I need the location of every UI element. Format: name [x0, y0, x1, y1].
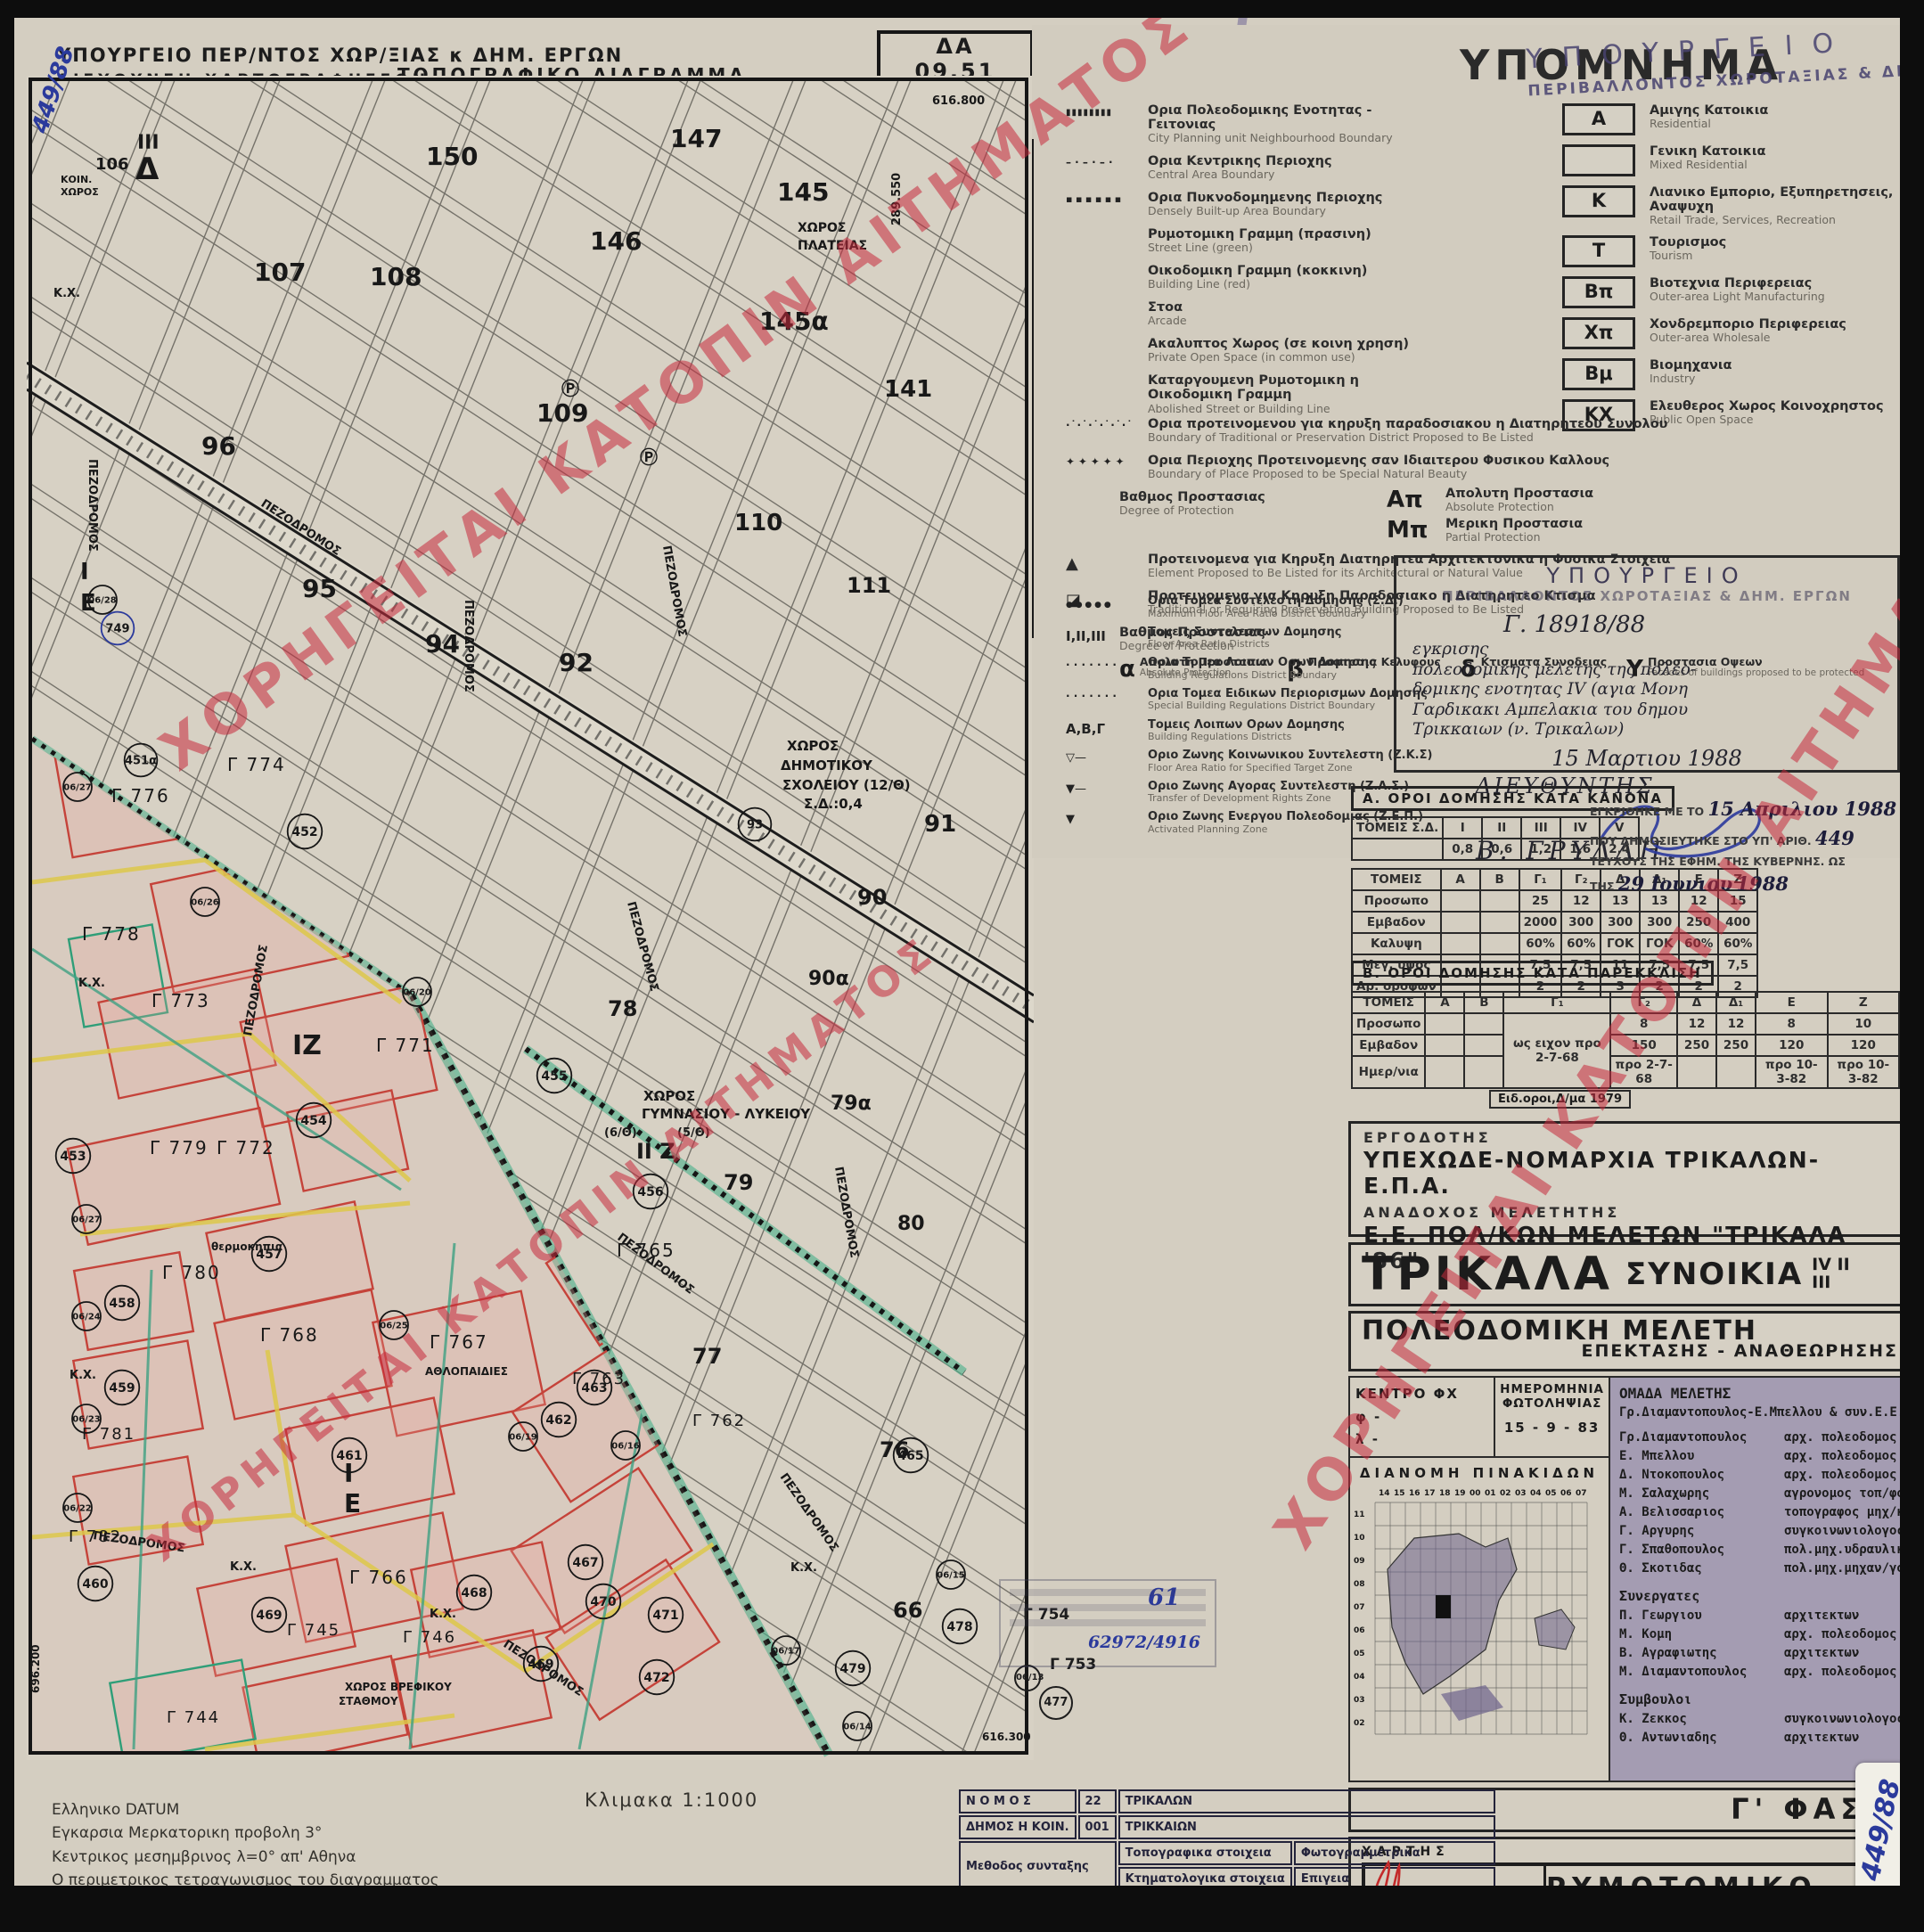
plot-number-circle: 93 [747, 819, 763, 832]
block-label: ΧΩΡΟΣ [61, 186, 99, 198]
team-title: ΟΜΑΔΑ ΜΕΛΕΤΗΣ [1619, 1385, 1900, 1402]
block-label: 141 [884, 376, 932, 403]
datum-line: Εγκαρσια Μερκατορικη προβολη 3° [52, 1821, 439, 1845]
block-label: 95 [302, 574, 337, 603]
team-member-row: Γ. Αργυρης συγκοινωνιολογος [1619, 1524, 1900, 1538]
legend-symbol-icon [1066, 373, 1148, 414]
table-cell: Τοπογραφικα στοιχεια [1118, 1841, 1292, 1865]
stamp-body-line: Τρικκαιων (ν. Τρικαλων) [1412, 720, 1897, 741]
legend-item-greek: Ορια Πολεοδομικης Ενοτητας - Γειτονιας [1148, 103, 1440, 132]
legend-item-text: Ορια Τομεα Συντελεστη Δομησης (Σ.Δ.) Max… [1148, 595, 1404, 619]
block-label: Κ.Χ. [70, 1369, 96, 1382]
member-role: πολ.μηχ.υδραυλικος [1784, 1543, 1900, 1557]
block-label: (5/Θ) [677, 1126, 710, 1140]
block-label: 111 [847, 573, 891, 598]
advisor-name: Θ. Αντωνιαδης [1619, 1731, 1784, 1745]
team-member-row: Α. Βελισσαριος τοπογραφος μηχ/κος [1619, 1505, 1900, 1519]
table-cell [1425, 1035, 1464, 1056]
stamp-body-line: πολεοδομικης μελετης της πολεο- [1412, 660, 1897, 681]
protection-code-greek: Απολυτη Προστασια [1445, 487, 1593, 501]
plot-number-circle: 459 [109, 1381, 135, 1396]
land-use-item: Βμ Βιομηχανια Industry [1562, 358, 1896, 390]
land-use-item: Χπ Χονδρεμποριο Περιφερειας Outer-area W… [1562, 317, 1896, 349]
legend-item: Οριο Ζωνης Κοινωνικου Συντελεστη (Ζ.Κ.Σ)… [1066, 749, 1449, 774]
collaborator-name: Π. Γεωργιου [1619, 1609, 1784, 1623]
svg-text:06: 06 [1354, 1626, 1365, 1635]
legend-item-text: Ορια Πυκνοδομημενης Περιοχης Densely Bui… [1148, 191, 1382, 217]
table-cell: 1,2 [1521, 839, 1560, 860]
land-use-text: Χονδρεμποριο Περιφερειας Outer-area Whol… [1650, 317, 1846, 344]
block-label: Γ 746 [403, 1628, 456, 1647]
plot-number-circle: 06/27 [72, 1216, 101, 1225]
survey-info-table: Ν Ο Μ Ο Σ22ΤΡΙΚΑΛΩΝΔΗΜΟΣ Η ΚΟΙΝ.001ΤΡΙΚΚ… [957, 1788, 1497, 1886]
land-use-text: Γενικη Κατοικια Mixed Residential [1650, 144, 1766, 171]
plot-number-circle: 456 [637, 1185, 663, 1199]
sheet-index-map: ΔΙΑΝΟΜΗ ΠΙΝΑΚΙΔΩΝ 1415161718190001020304… [1350, 1458, 1609, 1759]
block-label: Δ [135, 151, 160, 187]
gazette-printed-3: ΤΕΥΧΟΥΣ ΤΗΣ ΕΦΗΜ. ΤΗΣ ΚΥΒΕΡΝΗΣ. ΩΣ [1590, 855, 1846, 868]
legend-item-english: Densely Built-up Area Boundary [1148, 205, 1382, 217]
plot-number-circle: 463 [581, 1381, 607, 1396]
legend-item-greek: Ορια Τομεα Λοιπων Ορων Δομησης [1148, 657, 1376, 670]
derogation-terms-table: ΤΟΜΕΙΣΑΒΓ₁Γ₂ΔΔ₁ΕΖΠροσωποως ειχον προ 2-7… [1351, 991, 1900, 1089]
gazette-hand-date: 15 Απριλιου 1988 [1708, 798, 1897, 820]
collaborator-role: αρχ. πολεοδομος [1784, 1627, 1896, 1641]
svg-text:14: 14 [1379, 1489, 1390, 1498]
table-cell [1480, 912, 1519, 933]
svg-text:07: 07 [1354, 1603, 1365, 1612]
block-label: 289.550 [890, 173, 904, 225]
legend-item: Ορια προτεινομενου για κηρυξη παραδοσιακ… [1066, 417, 1868, 444]
street-label: ΠΕΖΟΔΡΟΜΟΣ [86, 459, 99, 552]
table-cell: Εμβαδον [1352, 1035, 1425, 1056]
table-cell: προ 10-3-82 [1828, 1056, 1900, 1088]
plot-number-circle: 470 [590, 1595, 616, 1609]
legend-symbol-icon [1066, 227, 1148, 254]
block-label: Γ 772 [217, 1137, 275, 1158]
table-cell: Ν Ο Μ Ο Σ [959, 1789, 1077, 1813]
protection-code-english: Absolute Protection [1445, 501, 1593, 513]
plot-number-circle: 465 [897, 1449, 923, 1463]
land-use-text: Λιανικο Εμποριο, Εξυπηρετησεις, Αναψυχη … [1650, 185, 1896, 226]
block-label: 147 [670, 124, 722, 153]
table-cell: ΤΡΙΚΚΑΙΩΝ [1118, 1815, 1495, 1839]
block-label: ΧΩΡΟΣ ΒΡΕΦΙΚΟΥ [345, 1681, 452, 1693]
employer-box: ΕΡΓΟΔΟΤΗΣ ΥΠΕΧΩΔΕ-ΝΟΜΑΡΧΙΑ ΤΡΙΚΑΛΩΝ-Ε.Π.… [1348, 1121, 1900, 1237]
table-cell [1480, 933, 1519, 954]
table-cell: Καλυψη [1352, 933, 1441, 954]
legend-divider [1032, 139, 1034, 638]
collaborator-row: Μ. Κομη αρχ. πολεοδομος [1619, 1627, 1900, 1641]
consultant-label: ΑΝΑΔΟΧΟΣ ΜΕΛΕΤΗΤΗΣ [1363, 1204, 1896, 1221]
table-cell: 400 [1718, 912, 1757, 933]
svg-text:01: 01 [1485, 1489, 1496, 1498]
legend-item: Στοα Arcade [1066, 300, 1440, 327]
legend-item-text: Τομεις Συντελεστων Δομησης Floor Area Ra… [1148, 626, 1341, 651]
svg-text:04: 04 [1354, 1673, 1365, 1682]
legend-item: Ορια Πολεοδομικης Ενοτητας - Γειτονιας C… [1066, 103, 1440, 144]
city-title: ΤΡΙΚΑΛΑ [1362, 1248, 1613, 1301]
legend-item: Ορια Τομεα Ειδικων Περιορισμων Δομησης S… [1066, 688, 1449, 712]
protection-degree-block: Βαθμος Προστασιας Degree of Protection Α… [1119, 490, 1868, 544]
block-label: 696.200 [29, 1644, 42, 1693]
legend-symbol-icon [1066, 337, 1148, 364]
legend-item-greek: Στοα [1148, 300, 1187, 315]
block-label: Ⓟ [640, 446, 658, 468]
block-label: 107 [254, 258, 306, 287]
legend-item-text: Οικοδομικη Γραμμη (κοκκινη) Building Lin… [1148, 264, 1367, 291]
legend-item-english: Street Line (green) [1148, 241, 1371, 254]
block-label: 109 [536, 398, 588, 428]
svg-text:08: 08 [1354, 1580, 1365, 1589]
table-cell [1352, 839, 1443, 860]
svg-text:19: 19 [1454, 1489, 1466, 1498]
land-use-english: Tourism [1650, 250, 1726, 262]
plot-number-circle: 06/23 [72, 1415, 101, 1425]
block-label: Σ.Δ.:0,4 [804, 796, 863, 812]
legend-symbol-icon [1066, 688, 1148, 712]
plot-number-circle: 749 [105, 623, 129, 636]
member-name: Α. Βελισσαριος [1619, 1505, 1784, 1519]
block-label: Γ 766 [349, 1567, 408, 1588]
table-cell: Β [1464, 992, 1503, 1013]
plot-number-circle: 460 [82, 1577, 108, 1592]
land-use-greek: Γενικη Κατοικια [1650, 144, 1766, 159]
plot-number-circle: 471 [652, 1609, 678, 1623]
svg-text:06: 06 [1560, 1489, 1572, 1498]
legend-symbol-icon [1066, 595, 1148, 619]
plot-number-circle: 06/14 [843, 1723, 872, 1732]
legend-item-english: Boundary of Place Proposed to be Special… [1148, 468, 1609, 480]
legend-item: Οικοδομικη Γραμμη (κοκκινη) Building Lin… [1066, 264, 1440, 291]
table-cell: 60% [1519, 933, 1562, 954]
legend-item-text: Ορια προτεινομενου για κηρυξη παραδοσιακ… [1148, 417, 1667, 444]
table-cell: ΓΟΚ [1640, 933, 1679, 954]
red-check-scribble-icon [1360, 1855, 1413, 1886]
info-grid: ΚΕΝΤΡΟ ΦΧ φ - λ - ΗΜΕΡΟΜΗΝΙΑ ΦΩΤΟΛΗΨΙΑΣ … [1348, 1376, 1900, 1782]
legend-item-greek: Τομεις Λοιπων Ορων Δομησης [1148, 719, 1345, 733]
block-label: 145 [777, 177, 829, 207]
block-label: 110 [734, 510, 782, 536]
table-cell [1480, 890, 1519, 912]
block-label: Κ.Χ. [430, 1608, 456, 1621]
land-use-code-box: Βπ [1562, 276, 1635, 308]
svg-text:02: 02 [1354, 1719, 1365, 1728]
svg-text:07: 07 [1576, 1489, 1587, 1498]
advisor-row: Θ. Αντωνιαδης αρχιτεκτων [1619, 1731, 1900, 1745]
legend-item-greek: Καταργουμενη Ρυμοτομικη η Οικοδομικη Γρα… [1148, 373, 1440, 402]
gazette-hand-number: 449 [1815, 827, 1854, 849]
gazette-hand-date-2: 29 Ιουνιου [1618, 872, 1732, 895]
table-cell: ΔΗΜΟΣ Η ΚΟΙΝ. [959, 1815, 1077, 1839]
team-firm: Γρ.Διαμαντοπουλος-Ε.Μπελλου & συν.Ε.Ε. [1619, 1405, 1900, 1420]
collaborator-row: Π. Γεωργιου αρχιτεκτων [1619, 1609, 1900, 1623]
table-cell: προ 2-7-68 [1610, 1056, 1677, 1088]
stamp-body-line: δομικης ενοτητας ΙV (αγια Μονη [1412, 680, 1897, 700]
svg-text:03: 03 [1354, 1696, 1365, 1705]
land-use-greek: Βιοτεχνια Περιφερειας [1650, 276, 1825, 291]
block-label: 94 [425, 629, 460, 659]
employer-label: ΕΡΓΟΔΟΤΗΣ [1363, 1129, 1896, 1146]
district-numerals-top: ΙV ΙΙ [1812, 1257, 1850, 1274]
plot-number-circle: 06/22 [63, 1504, 92, 1514]
legend-item-greek: Ορια προτεινομενου για κηρυξη παραδοσιακ… [1148, 417, 1667, 431]
sticker-number: 449/88 [1855, 1776, 1900, 1883]
info-left-column: ΚΕΝΤΡΟ ΦΧ φ - λ - ΗΜΕΡΟΜΗΝΙΑ ΦΩΤΟΛΗΨΙΑΣ … [1350, 1378, 1610, 1781]
collaborator-name: Μ. Διαμαντοπουλος [1619, 1665, 1784, 1679]
table-cell [1425, 1013, 1464, 1035]
table-cell: 60% [1718, 933, 1757, 954]
plot-number-circle: 451α [125, 755, 157, 768]
title-block-column: ΕΡΓΟΔΟΤΗΣ ΥΠΕΧΩΔΕ-ΝΟΜΑΡΧΙΑ ΤΡΙΚΑΛΩΝ-Ε.Π.… [1348, 1121, 1900, 1886]
legend-item-english: Boundary of Traditional or Preservation … [1148, 431, 1667, 444]
stamp-agency-line1: ΥΠΟΥΡΓΕΙΟ [1396, 563, 1897, 588]
block-label: 78 [608, 996, 637, 1021]
member-name: Δ. Ντοκοπουλος [1619, 1468, 1784, 1482]
chart-name: ΡΥΜΟΤΟΜΙΚΟ ΣΧΕΔΙΟ [1546, 1866, 1895, 1886]
table-cell: ΙΙ [1482, 817, 1521, 839]
plot-number-circle: 479 [839, 1662, 865, 1676]
legend-item-english: Building Line (red) [1148, 278, 1367, 291]
block-label: 79α [831, 1093, 872, 1115]
plot-number-circle: 06/16 [611, 1442, 640, 1452]
plot-number-circle: 472 [643, 1671, 669, 1685]
land-use-greek: Λιανικο Εμποριο, Εξυπηρετησεις, Αναψυχη [1650, 185, 1896, 214]
file-number-sticker: 449/88 [1855, 1763, 1900, 1886]
block-label: 90 [857, 885, 887, 910]
advisor-role: συγκοινωνιολογος [1784, 1712, 1900, 1726]
block-label: Ι [80, 559, 89, 585]
member-role: τοπογραφος μηχ/κος [1784, 1505, 1900, 1519]
plot-number-circle: 06/28 [88, 596, 117, 606]
block-label: 616.300 [982, 1731, 1031, 1743]
legend-symbol-icon [1066, 553, 1148, 579]
legend-item-english: Building Regulations Districts [1148, 732, 1345, 742]
protection-code-letter: Μπ [1387, 517, 1445, 544]
legend-item-greek: Ορια Πυκνοδομημενης Περιοχης [1148, 191, 1382, 205]
legend-symbol-icon: Ι,ΙΙ,ΙΙΙ [1066, 626, 1148, 651]
member-name: Θ. Σκοτιδας [1619, 1561, 1784, 1576]
table-cell: 60% [1679, 933, 1718, 954]
legend-item-english: Private Open Space (in common use) [1148, 351, 1409, 364]
block-label: ΓΥΜΝΑΣΙΟΥ - ΛΥΚΕΙΟΥ [642, 1106, 811, 1122]
legend-item-text: Στοα Arcade [1148, 300, 1187, 327]
legend-item-greek: Ορια Τομεα Ειδικων Περιορισμων Δομησης [1148, 688, 1428, 701]
legend-item: Ορια Τομεα Συντελεστη Δομησης (Σ.Δ.) Max… [1066, 595, 1449, 619]
block-label: 80 [897, 1213, 925, 1235]
block-label: Γ 745 [287, 1621, 340, 1640]
member-role: αρχ. πολεοδομος [1784, 1430, 1896, 1445]
legend-item: Καταργουμενη Ρυμοτομικη η Οικοδομικη Γρα… [1066, 373, 1440, 414]
table-cell: προ 10-3-82 [1756, 1056, 1827, 1088]
table-cell: 12 [1716, 1013, 1756, 1035]
protection-code-text: Μερικη Προστασια Partial Protection [1445, 517, 1583, 544]
legend-item-english: Building Regulations District Boundary [1148, 670, 1376, 681]
land-use-text: Τουρισμος Tourism [1650, 235, 1726, 262]
table-cell [1441, 933, 1480, 954]
land-use-english: Residential [1650, 118, 1768, 130]
legend-item-greek: Ακαλυπτος Χωρος (σε κοινη χρηση) [1148, 337, 1409, 351]
block-label: Γ 773 [151, 990, 210, 1011]
advisor-role: αρχιτεκτων [1784, 1731, 1859, 1745]
stamp-protocol-number: Γ. 18918/88 [1503, 611, 1897, 638]
legend-item-greek: Ρυμοτομικη Γραμμη (πρασινη) [1148, 227, 1371, 241]
table-cell: 250 [1677, 1035, 1716, 1056]
table-cell: 300 [1640, 912, 1679, 933]
table-cell: ΤΡΙΚΑΛΩΝ [1118, 1789, 1495, 1813]
svg-text:02: 02 [1500, 1489, 1511, 1498]
table-cell: 120 [1828, 1035, 1900, 1056]
legend-item-english: City Planning unit Neighbourhood Boundar… [1148, 132, 1440, 144]
table-cell: Ζ [1828, 992, 1900, 1013]
legend-item-greek: Τομεις Συντελεστων Δομησης [1148, 626, 1341, 640]
phi-value: φ - [1355, 1406, 1488, 1429]
collaborator-row: Β. Αγραφιωτης αρχιτεκτων [1619, 1646, 1900, 1660]
plot-number-circle: 455 [541, 1069, 567, 1084]
table-cell: 0,8 [1443, 839, 1482, 860]
land-use-english: Mixed Residential [1650, 159, 1766, 171]
legend-item-text: Καταργουμενη Ρυμοτομικη η Οικοδομικη Γρα… [1148, 373, 1440, 414]
svg-text:05: 05 [1545, 1489, 1557, 1498]
protection-code-english: Partial Protection [1445, 531, 1583, 544]
table-cell: Β [1480, 869, 1519, 890]
table-cell: Γ₂ [1610, 992, 1677, 1013]
plot-number-circle: 478 [946, 1620, 972, 1634]
table-cell: 300 [1601, 912, 1640, 933]
employer-name: ΥΠΕΧΩΔΕ-ΝΟΜΑΡΧΙΑ ΤΡΙΚΑΛΩΝ-Ε.Π.Α. [1363, 1147, 1896, 1199]
table-cell: 8 [1756, 1013, 1827, 1035]
center-label: ΚΕΝΤΡΟ ΦΧ [1355, 1383, 1488, 1406]
land-use-code-box: Κ [1562, 185, 1635, 217]
map-margin-label: 477 [1039, 1686, 1073, 1720]
land-use-code-list: Α Αμιγης Κατοικια Residential Γενικη Κατ… [1562, 103, 1896, 440]
table-cell [1464, 1013, 1503, 1035]
collaborators-title: Συνεργατες [1619, 1588, 1900, 1604]
land-use-code-box: Βμ [1562, 358, 1635, 390]
block-label: Κ.Χ. [230, 1560, 257, 1574]
gazette-printed-2: ΠΟΥ ΔΗΜΟΣΙΕΥΤΗΚΕ ΣΤΟ ΥΠ' ΑΡΙΘ. [1590, 834, 1812, 847]
collaborator-role: αρχ. πολεοδομος [1784, 1665, 1896, 1679]
project-title-box: ΤΡΙΚΑΛΑ ΣΥΝΟΙΚΙΑ ΙV ΙΙ ΙΙΙ [1348, 1242, 1900, 1306]
table-cell: 8 [1610, 1013, 1677, 1035]
legend-symbol-icon [1066, 264, 1148, 291]
gazette-printed-4: ΤΗΣ [1590, 880, 1615, 893]
table-cell: Ε [1756, 992, 1827, 1013]
land-use-text: Βιομηχανια Industry [1650, 358, 1732, 385]
block-label: Γ 781 [82, 1425, 135, 1444]
protection-code: Μπ Μερικη Προστασια Partial Protection [1387, 517, 1868, 544]
table-cell: Προσωπο [1352, 1013, 1425, 1035]
plot-number-circle: 06/19 [509, 1433, 537, 1443]
svg-text:10: 10 [1354, 1534, 1365, 1543]
plot-number-circle: 452 [291, 825, 317, 839]
block-label: Γ 778 [82, 923, 141, 945]
datum-line: Ο περιμετρικος τετραγωνισμος του διαγραμ… [52, 1869, 439, 1886]
map-scale-note: Κλιμακα 1:1000 [585, 1789, 758, 1811]
land-use-greek: Τουρισμος [1650, 235, 1726, 250]
legend-symbol-icon [1066, 154, 1148, 181]
plot-number-circle: 458 [109, 1297, 135, 1311]
photo-date-cell: ΗΜΕΡΟΜΗΝΙΑ ΦΩΤΟΛΗΨΙΑΣ 15 - 9 - 83 [1495, 1378, 1609, 1456]
datum-line: Ελληνικο DATUM [52, 1798, 439, 1821]
stamp-handwritten-body: εγκρισηςπολεοδομικης μελετης της πολεο-δ… [1412, 640, 1897, 741]
protection-code-greek: Μερικη Προστασια [1445, 517, 1583, 531]
table-cell: 250 [1679, 912, 1718, 933]
svg-text:18: 18 [1439, 1489, 1451, 1498]
plot-number-circle: 06/26 [191, 898, 219, 908]
table-cell: ΙΙΙ [1521, 817, 1560, 839]
block-label: ΙΙ Ζ [636, 1139, 675, 1164]
topographic-map: 106ΙΙΙΔ10710896150146147145145α141109110… [27, 76, 1034, 1760]
block-label: 145α [759, 307, 829, 336]
legend-item-greek: Οριο Ζωνης Κοινωνικου Συντελεστη (Ζ.Κ.Σ) [1148, 749, 1432, 763]
table-cell: Μεθοδος συνταξης [959, 1841, 1117, 1886]
svg-text:04: 04 [1530, 1489, 1542, 1498]
gazette-approval-note: ΕΓΚΡΙΘΗΚΕ ΜΕ ΤΟ 15 Απριλιου 1988 ΠΟΥ ΔΗΜ… [1590, 795, 1900, 899]
table-cell: ΤΟΜΕΙΣ [1352, 869, 1441, 890]
land-use-text: Βιοτεχνια Περιφερειας Outer-area Light M… [1650, 276, 1825, 303]
svg-text:15: 15 [1394, 1489, 1405, 1498]
legend-item: Α,Β,Γ Τομεις Λοιπων Ορων Δομησης Buildin… [1066, 719, 1449, 743]
table-cell [1425, 1056, 1464, 1088]
land-use-item: Τ Τουρισμος Tourism [1562, 235, 1896, 267]
table-cell: 250 [1716, 1035, 1756, 1056]
block-label: ΑΘΛΟΠΑΙΔΙΕΣ [425, 1365, 508, 1378]
legend-item-english: Special Building Regulations District Bo… [1148, 700, 1428, 711]
block-label: Ⓟ [561, 378, 579, 399]
collaborator-role: αρχιτεκτων [1784, 1646, 1859, 1660]
block-label: ΠΛΑΤΕΙΑΣ [798, 239, 867, 253]
table-cell: ΤΟΜΕΙΣ [1352, 992, 1425, 1013]
table-cell: 2000 [1519, 912, 1562, 933]
legend-item-english: Central Area Boundary [1148, 168, 1332, 181]
plot-number-circle: 467 [572, 1556, 598, 1570]
plot-number-circle: 06/17 [772, 1647, 800, 1657]
collaborator-row: Μ. Διαμαντοπουλος αρχ. πολεοδομος [1619, 1665, 1900, 1679]
map-margin-label: 06/13 [1014, 1665, 1041, 1691]
land-use-item: Κ Λιανικο Εμποριο, Εξυπηρετησεις, Αναψυχ… [1562, 185, 1896, 226]
member-name: Γρ.Διαμαντοπουλος [1619, 1430, 1784, 1445]
team-member-row: Θ. Σκοτιδας πολ.μηχ.μηχαν/γος [1619, 1561, 1900, 1576]
legend-item-text: Τομεις Λοιπων Ορων Δομησης Building Regu… [1148, 719, 1345, 743]
land-use-code-box: Χπ [1562, 317, 1635, 349]
approval-stamp-box: ΥΠΟΥΡΓΕΙΟ ΠΕΡΙΒΑΛΛΟΝΤΟΣ ΧΩΡΟΤΑΞΙΑΣ & ΔΗΜ… [1394, 555, 1900, 773]
gazette-printed-1: ΕΓΚΡΙΘΗΚΕ ΜΕ ΤΟ [1590, 805, 1704, 818]
table-cell: ως ειχον προ 2-7-68 [1503, 1013, 1610, 1088]
table-cell: Α [1425, 992, 1464, 1013]
map-sheet-paper: ΥΠΟΥΡΓΕΙΟ ΠΕΡ/ΝΤΟΣ ΧΩΡ/ΞΙΑΣ κ ΔΗΜ. ΕΡΓΩΝ… [14, 18, 1900, 1886]
block-label: ΣΤΑΘΜΟΥ [339, 1695, 398, 1707]
collaborator-name: Μ. Κομη [1619, 1627, 1784, 1641]
advisors-title: Συμβουλοι [1619, 1691, 1900, 1707]
legend-item-english: Maximum Floor Area Ratio District Bounda… [1148, 609, 1404, 619]
table-cell [1464, 1035, 1503, 1056]
table-cell: Ι [1443, 817, 1482, 839]
block-label: 106 [95, 155, 129, 174]
table-cell: 150 [1610, 1035, 1677, 1056]
legend-item: Ι,ΙΙ,ΙΙΙ Τομεις Συντελεστων Δομησης Floo… [1066, 626, 1449, 651]
table-b-footnote: Ειδ.οροι,Δ/μα 1979 [1489, 1090, 1631, 1109]
collaborator-role: αρχιτεκτων [1784, 1609, 1859, 1623]
land-use-greek: Βιομηχανια [1650, 358, 1732, 372]
legend-item-text: Ορια Περιοχης Προτεινομενης σαν Ιδιαιτερ… [1148, 454, 1609, 480]
stamp-body-line: Γαρδικακι Αμπελακια του δημου [1412, 700, 1897, 721]
plot-number-circle: 468 [461, 1586, 487, 1600]
team-member-row: Δ. Ντοκοπουλος αρχ. πολεοδομος [1619, 1468, 1900, 1482]
table-cell: 25 [1519, 890, 1562, 912]
legend-item: Ρυμοτομικη Γραμμη (πρασινη) Street Line … [1066, 227, 1440, 254]
table-cell: Γ₁ [1519, 869, 1562, 890]
